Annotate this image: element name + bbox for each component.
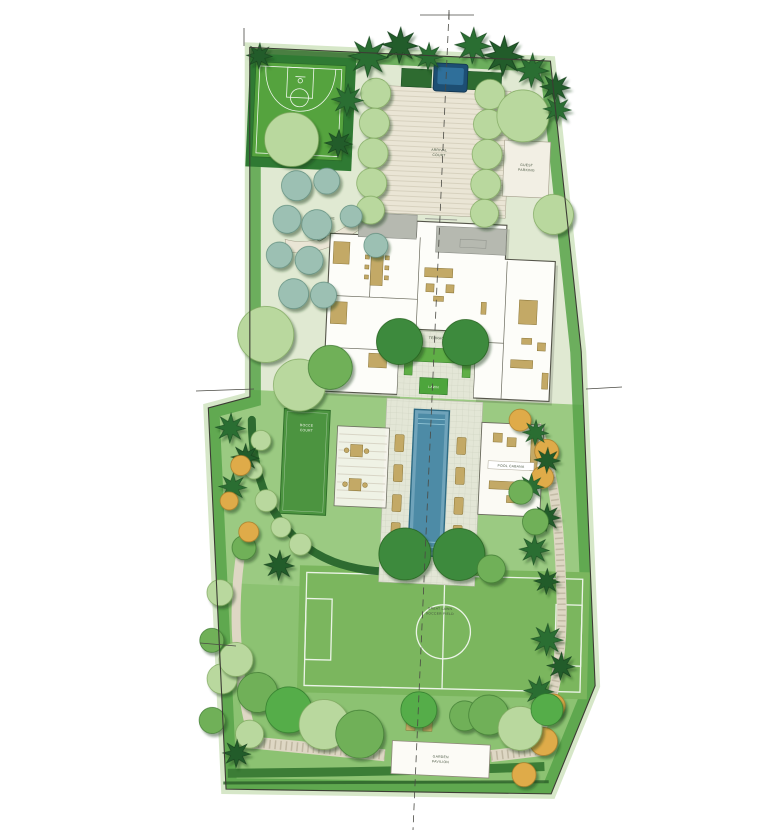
entry-hedge xyxy=(401,68,432,87)
autumn-tree xyxy=(230,455,251,476)
autumn-tree xyxy=(220,492,239,511)
pergola xyxy=(334,426,390,508)
shrub xyxy=(271,517,292,538)
site-plan-sheet: SPORT COURT ARRIVAL COURT GUEST PARKING … xyxy=(0,0,770,840)
label-field-2: SOCCER FIELD xyxy=(426,611,454,616)
label-lawn-panel: LAWN xyxy=(428,385,439,389)
label-field: GREAT LAWN xyxy=(428,606,453,611)
label-guest-parking-2: PARKING xyxy=(518,168,535,173)
bocce-court: BOCCE COURT xyxy=(280,408,331,515)
site-plan-drawing: SPORT COURT ARRIVAL COURT GUEST PARKING … xyxy=(0,0,770,840)
label-pavilion: GARDEN xyxy=(433,754,449,759)
label-arrival: ARRIVAL xyxy=(431,148,447,153)
autumn-tree xyxy=(238,521,259,542)
label-arrival-2: COURT xyxy=(432,153,445,158)
label-bocce-2: COURT xyxy=(300,428,313,433)
label-bocce: BOCCE xyxy=(300,423,314,428)
label-guest-parking: GUEST xyxy=(520,163,533,168)
water-feature-inner xyxy=(437,67,464,85)
label-pavilion-2: PAVILION xyxy=(432,759,450,764)
shrub xyxy=(250,430,271,451)
survey-extension-line xyxy=(586,387,622,389)
